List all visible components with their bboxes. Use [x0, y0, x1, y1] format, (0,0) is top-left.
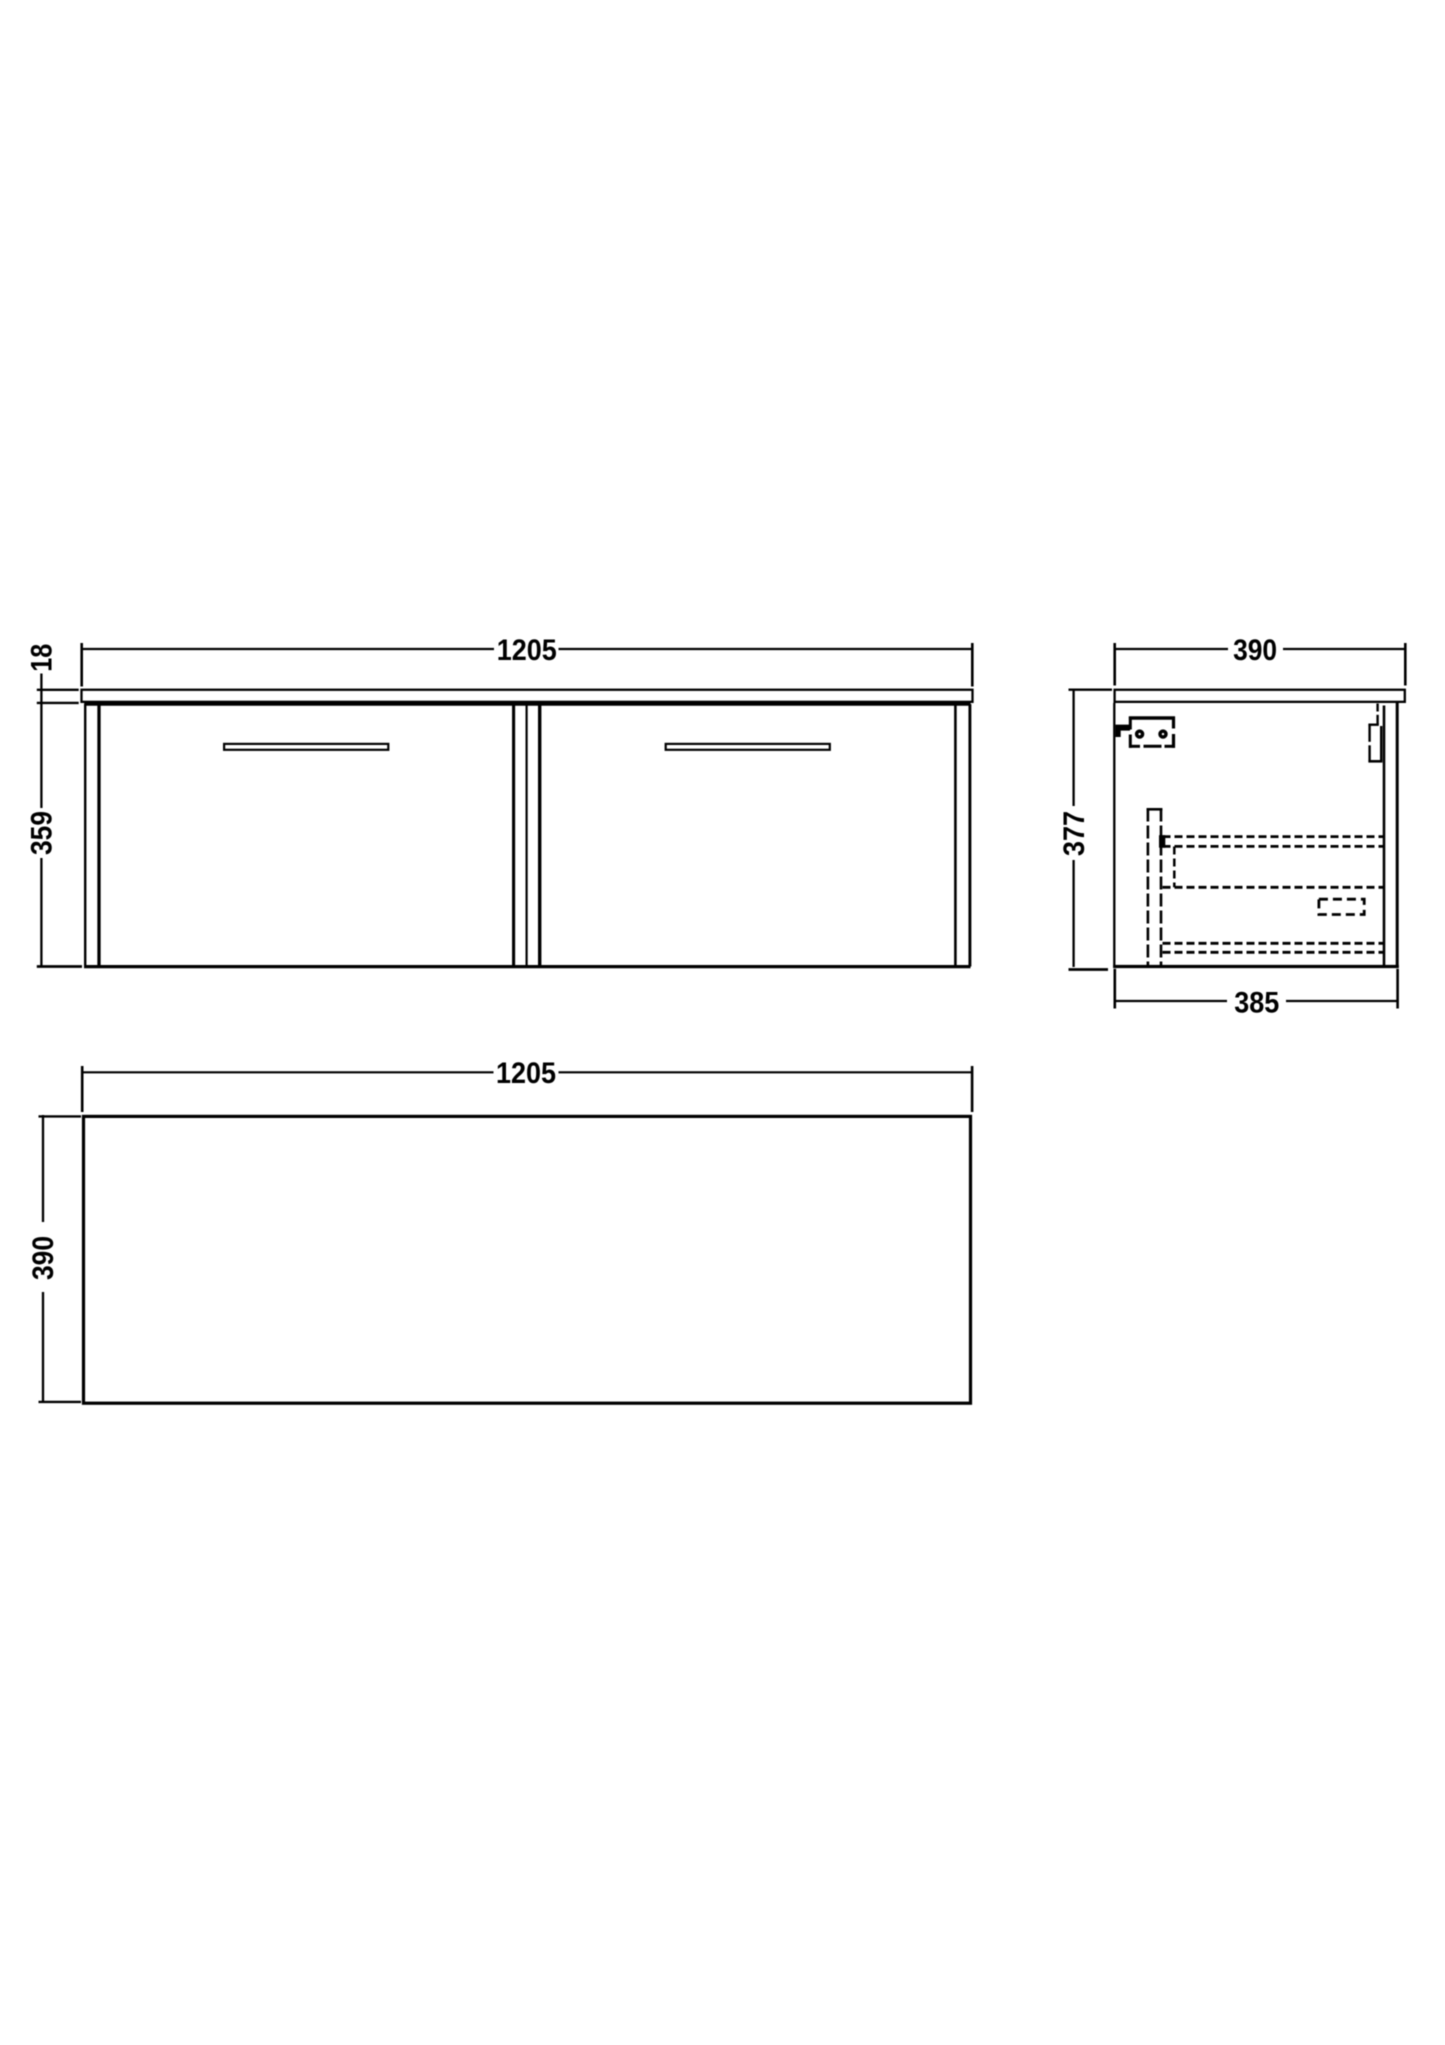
svg-text:18: 18 [26, 644, 59, 672]
svg-text:385: 385 [1234, 987, 1279, 1020]
svg-text:359: 359 [26, 811, 59, 855]
svg-text:1205: 1205 [497, 634, 557, 667]
svg-text:390: 390 [1233, 634, 1277, 667]
svg-text:390: 390 [27, 1236, 60, 1280]
svg-text:1205: 1205 [496, 1057, 556, 1090]
svg-text:377: 377 [1058, 811, 1091, 856]
